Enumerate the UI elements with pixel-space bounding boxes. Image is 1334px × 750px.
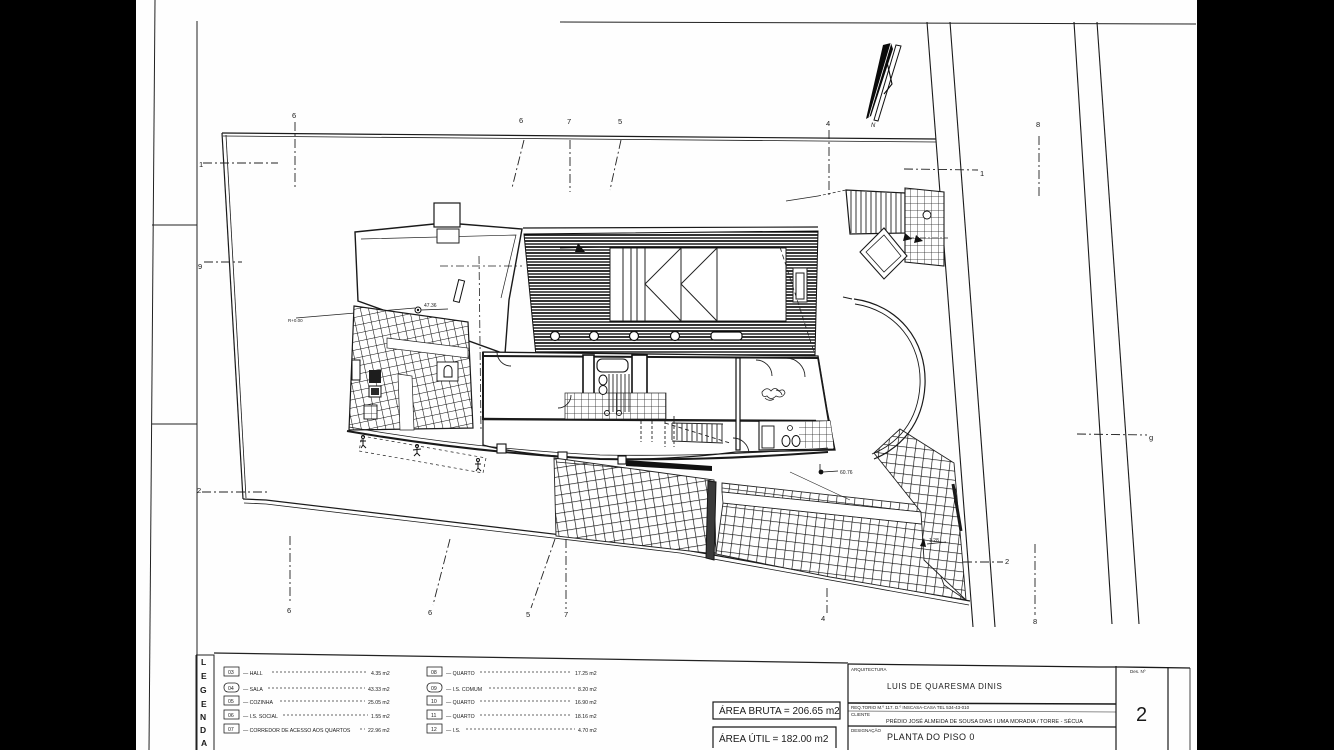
svg-text:LUIS DE QUARESMA DINIS: LUIS DE QUARESMA DINIS xyxy=(887,682,1002,691)
svg-text:— QUARTO: — QUARTO xyxy=(446,714,475,720)
svg-text:A: A xyxy=(201,738,207,748)
svg-text:25.05 m2: 25.05 m2 xyxy=(368,700,390,706)
svg-text:06: 06 xyxy=(228,713,234,719)
svg-text:CLIENTE: CLIENTE xyxy=(851,712,870,717)
svg-text:11: 11 xyxy=(431,713,436,719)
svg-text:g: g xyxy=(1149,433,1153,442)
svg-text:D: D xyxy=(200,725,206,735)
svg-text:E: E xyxy=(201,699,207,709)
svg-text:04: 04 xyxy=(228,686,234,692)
svg-text:8: 8 xyxy=(1036,120,1040,129)
svg-text:47.36: 47.36 xyxy=(424,303,437,309)
svg-text:N: N xyxy=(871,123,876,129)
svg-text:— I.S. SOCIAL: — I.S. SOCIAL xyxy=(243,714,278,720)
svg-text:ARQUITECTURA: ARQUITECTURA xyxy=(851,667,887,672)
svg-text:— CORREDOR DE ACESSO AOS QUART: — CORREDOR DE ACESSO AOS QUARTOS xyxy=(243,728,351,734)
svg-text:4: 4 xyxy=(826,119,830,128)
svg-text:2: 2 xyxy=(197,486,201,495)
svg-text:PRÉDIO JOSÉ ALMEIDA DE SOUSA D: PRÉDIO JOSÉ ALMEIDA DE SOUSA DIAS I UMA … xyxy=(886,718,1083,725)
svg-text:08: 08 xyxy=(431,670,437,676)
svg-text:60.76: 60.76 xyxy=(840,470,853,476)
svg-text:17.25 m2: 17.25 m2 xyxy=(575,671,597,677)
svg-text:1: 1 xyxy=(199,160,203,169)
svg-text:Des. Nº: Des. Nº xyxy=(1130,669,1146,674)
svg-text:— I.S.: — I.S. xyxy=(446,728,460,734)
svg-text:— HALL: — HALL xyxy=(243,671,263,677)
svg-text:6: 6 xyxy=(519,116,523,125)
svg-text:7: 7 xyxy=(567,117,571,126)
svg-text:6: 6 xyxy=(287,606,291,615)
svg-text:ÁREA BRUTA = 206.65 m2: ÁREA BRUTA = 206.65 m2 xyxy=(719,704,840,717)
svg-text:8: 8 xyxy=(1033,617,1037,626)
svg-text:REQ.TORIO M.º 117. D.º INSCA: REQ.TORIO M.º 117. D.º INSCASA-CASA TEL … xyxy=(851,705,970,710)
svg-text:22.96 m2: 22.96 m2 xyxy=(368,728,390,734)
svg-text:9: 9 xyxy=(198,262,202,271)
svg-text:DESIGNAÇÃO: DESIGNAÇÃO xyxy=(851,727,882,733)
svg-text:5: 5 xyxy=(618,117,622,126)
svg-text:— SALA: — SALA xyxy=(243,687,263,693)
svg-text:7: 7 xyxy=(564,610,568,619)
svg-text:ÁREA ÚTIL = 182.00 m2: ÁREA ÚTIL = 182.00 m2 xyxy=(719,732,829,745)
svg-text:2: 2 xyxy=(1005,557,1009,566)
svg-text:4.35 m2: 4.35 m2 xyxy=(371,671,390,677)
svg-text:— I.S. COMUM: — I.S. COMUM xyxy=(446,687,482,693)
svg-text:10: 10 xyxy=(431,699,437,705)
svg-text:1.55 m2: 1.55 m2 xyxy=(371,714,390,720)
svg-text:N: N xyxy=(200,712,206,722)
svg-text:09: 09 xyxy=(431,686,437,692)
svg-text:E: E xyxy=(201,671,207,681)
svg-text:07: 07 xyxy=(228,727,234,733)
svg-text:— COZINHA: — COZINHA xyxy=(243,700,274,706)
svg-text:PLANTA DO PISO 0: PLANTA DO PISO 0 xyxy=(887,732,975,742)
svg-text:— QUARTO: — QUARTO xyxy=(446,700,475,706)
svg-text:1: 1 xyxy=(980,169,984,178)
svg-text:4: 4 xyxy=(821,614,825,623)
svg-text:6: 6 xyxy=(428,608,432,617)
svg-text:16.90 m2: 16.90 m2 xyxy=(575,700,597,706)
svg-text:12: 12 xyxy=(431,727,437,733)
svg-text:— QUARTO: — QUARTO xyxy=(446,671,475,677)
svg-text:G: G xyxy=(200,685,207,695)
svg-text:1.28: 1.28 xyxy=(929,538,939,544)
svg-text:05: 05 xyxy=(228,699,234,705)
svg-text:R+0.00: R+0.00 xyxy=(288,318,303,323)
svg-text:18.16 m2: 18.16 m2 xyxy=(575,714,597,720)
svg-text:8.20 m2: 8.20 m2 xyxy=(578,687,597,693)
svg-text:4.70 m2: 4.70 m2 xyxy=(578,728,597,734)
svg-text:5: 5 xyxy=(526,610,530,619)
svg-text:03: 03 xyxy=(228,670,234,676)
svg-text:6: 6 xyxy=(292,111,296,120)
svg-text:43.33 m2: 43.33 m2 xyxy=(368,687,390,693)
svg-text:L: L xyxy=(201,657,206,667)
svg-text:2: 2 xyxy=(1136,704,1147,726)
